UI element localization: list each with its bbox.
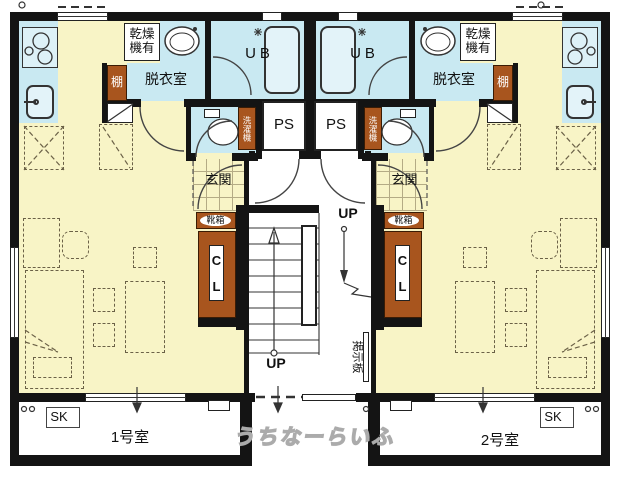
stove-burners-icon [25,33,595,64]
washbasin2-icon [421,27,455,55]
corridor1-door-arc [255,159,299,203]
balcony-faucet-markers [22,407,599,421]
room2-label: 2号室 [460,432,540,450]
room1-label: 1号室 [90,429,170,447]
bulletin-board-label: 掲示板 [350,336,364,378]
dimension-marker-left [19,2,25,8]
dressing-room1-label: 脱衣室 [127,70,205,90]
counter2-diagonal [487,104,513,122]
dryer-note2: 乾燥機有 [460,23,496,61]
entrance2-label: 玄関 [379,172,430,188]
kitchen-faucet-icons [24,100,596,104]
entrance1-label: 玄関 [193,172,244,188]
dressing-room2-label: 脱衣室 [415,70,493,90]
stair-entry-arrow [340,227,371,298]
dressing2-door-arc [436,107,480,151]
pipe-space1-label: PS [262,114,306,136]
corridor2-door-arc [321,159,365,203]
up-label-top: UP [328,206,368,222]
dryer-note1: 乾燥機有 [124,23,160,61]
entrance-marker [364,407,369,412]
toilet2-icon [382,119,412,145]
plan-linework [0,0,626,480]
balcony-flow-arrows [133,386,487,412]
pipe-space2-label: PS [314,114,358,136]
toilet1-icon [208,119,238,145]
watermark: うちなーらいふ [226,424,405,452]
up-label-bottom: UP [256,356,296,372]
floor-plan: 棚 棚 洗濯機 洗濯機 靴箱 靴箱 CL CL [0,0,626,480]
slop-sink2-label: SK [540,407,574,428]
stair-handrail-line [302,226,316,325]
washbasin1-icon [165,27,199,55]
unit-bath1-label: UB [211,44,304,64]
slop-sink1-label: SK [46,407,80,428]
shower-icons [254,28,366,36]
dressing1-door-arc [140,107,184,151]
unit-bath2-label: UB [316,44,409,64]
counter1-diagonal [107,104,133,122]
